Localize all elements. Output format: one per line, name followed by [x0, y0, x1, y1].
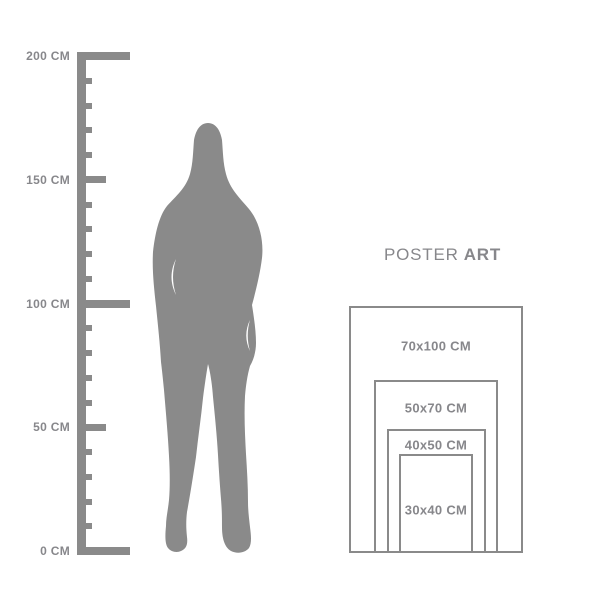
- ruler-tick-40cm: [77, 449, 92, 455]
- ruler-tick-70cm: [77, 375, 92, 381]
- ruler-tick-140cm: [77, 202, 92, 208]
- ruler-label-200cm: 200 CM: [12, 48, 70, 64]
- ruler-label-0cm: 0 CM: [12, 543, 70, 559]
- ruler-tick-160cm: [77, 152, 92, 158]
- poster-size-label-70x100-cm: 70x100 CM: [401, 338, 471, 353]
- ruler-tick-120cm: [77, 251, 92, 257]
- woman-silhouette-icon: [152, 122, 266, 554]
- ruler-tick-190cm: [77, 78, 92, 84]
- ruler-tick-90cm: [77, 325, 92, 331]
- poster-size-guide: 200 CM150 CM100 CM50 CM0 CM POSTERART 70…: [0, 0, 600, 600]
- woman-silhouette-shape: [153, 123, 263, 553]
- ruler-tick-150cm: [77, 176, 106, 183]
- brand-name-bold: ART: [464, 245, 501, 264]
- ruler-tick-100cm: [77, 300, 130, 308]
- ruler-tick-20cm: [77, 499, 92, 505]
- brand-logo: POSTERART: [384, 245, 501, 265]
- poster-size-label-50x70-cm: 50x70 CM: [405, 400, 467, 415]
- ruler-label-50cm: 50 CM: [12, 419, 70, 435]
- poster-size-label-40x50-cm: 40x50 CM: [405, 437, 467, 452]
- ruler-label-100cm: 100 CM: [12, 296, 70, 312]
- ruler-tick-170cm: [77, 127, 92, 133]
- ruler-tick-0cm: [77, 547, 130, 555]
- ruler-tick-80cm: [77, 350, 92, 356]
- ruler-label-150cm: 150 CM: [12, 172, 70, 188]
- ruler-tick-30cm: [77, 474, 92, 480]
- brand-name-regular: POSTER: [384, 245, 459, 264]
- ruler-tick-130cm: [77, 226, 92, 232]
- poster-size-label-30x40-cm: 30x40 CM: [405, 502, 467, 517]
- ruler-tick-60cm: [77, 400, 92, 406]
- ruler-tick-50cm: [77, 424, 106, 431]
- ruler-tick-10cm: [77, 523, 92, 529]
- ruler-tick-110cm: [77, 276, 92, 282]
- ruler-tick-200cm: [77, 52, 130, 60]
- ruler-tick-180cm: [77, 103, 92, 109]
